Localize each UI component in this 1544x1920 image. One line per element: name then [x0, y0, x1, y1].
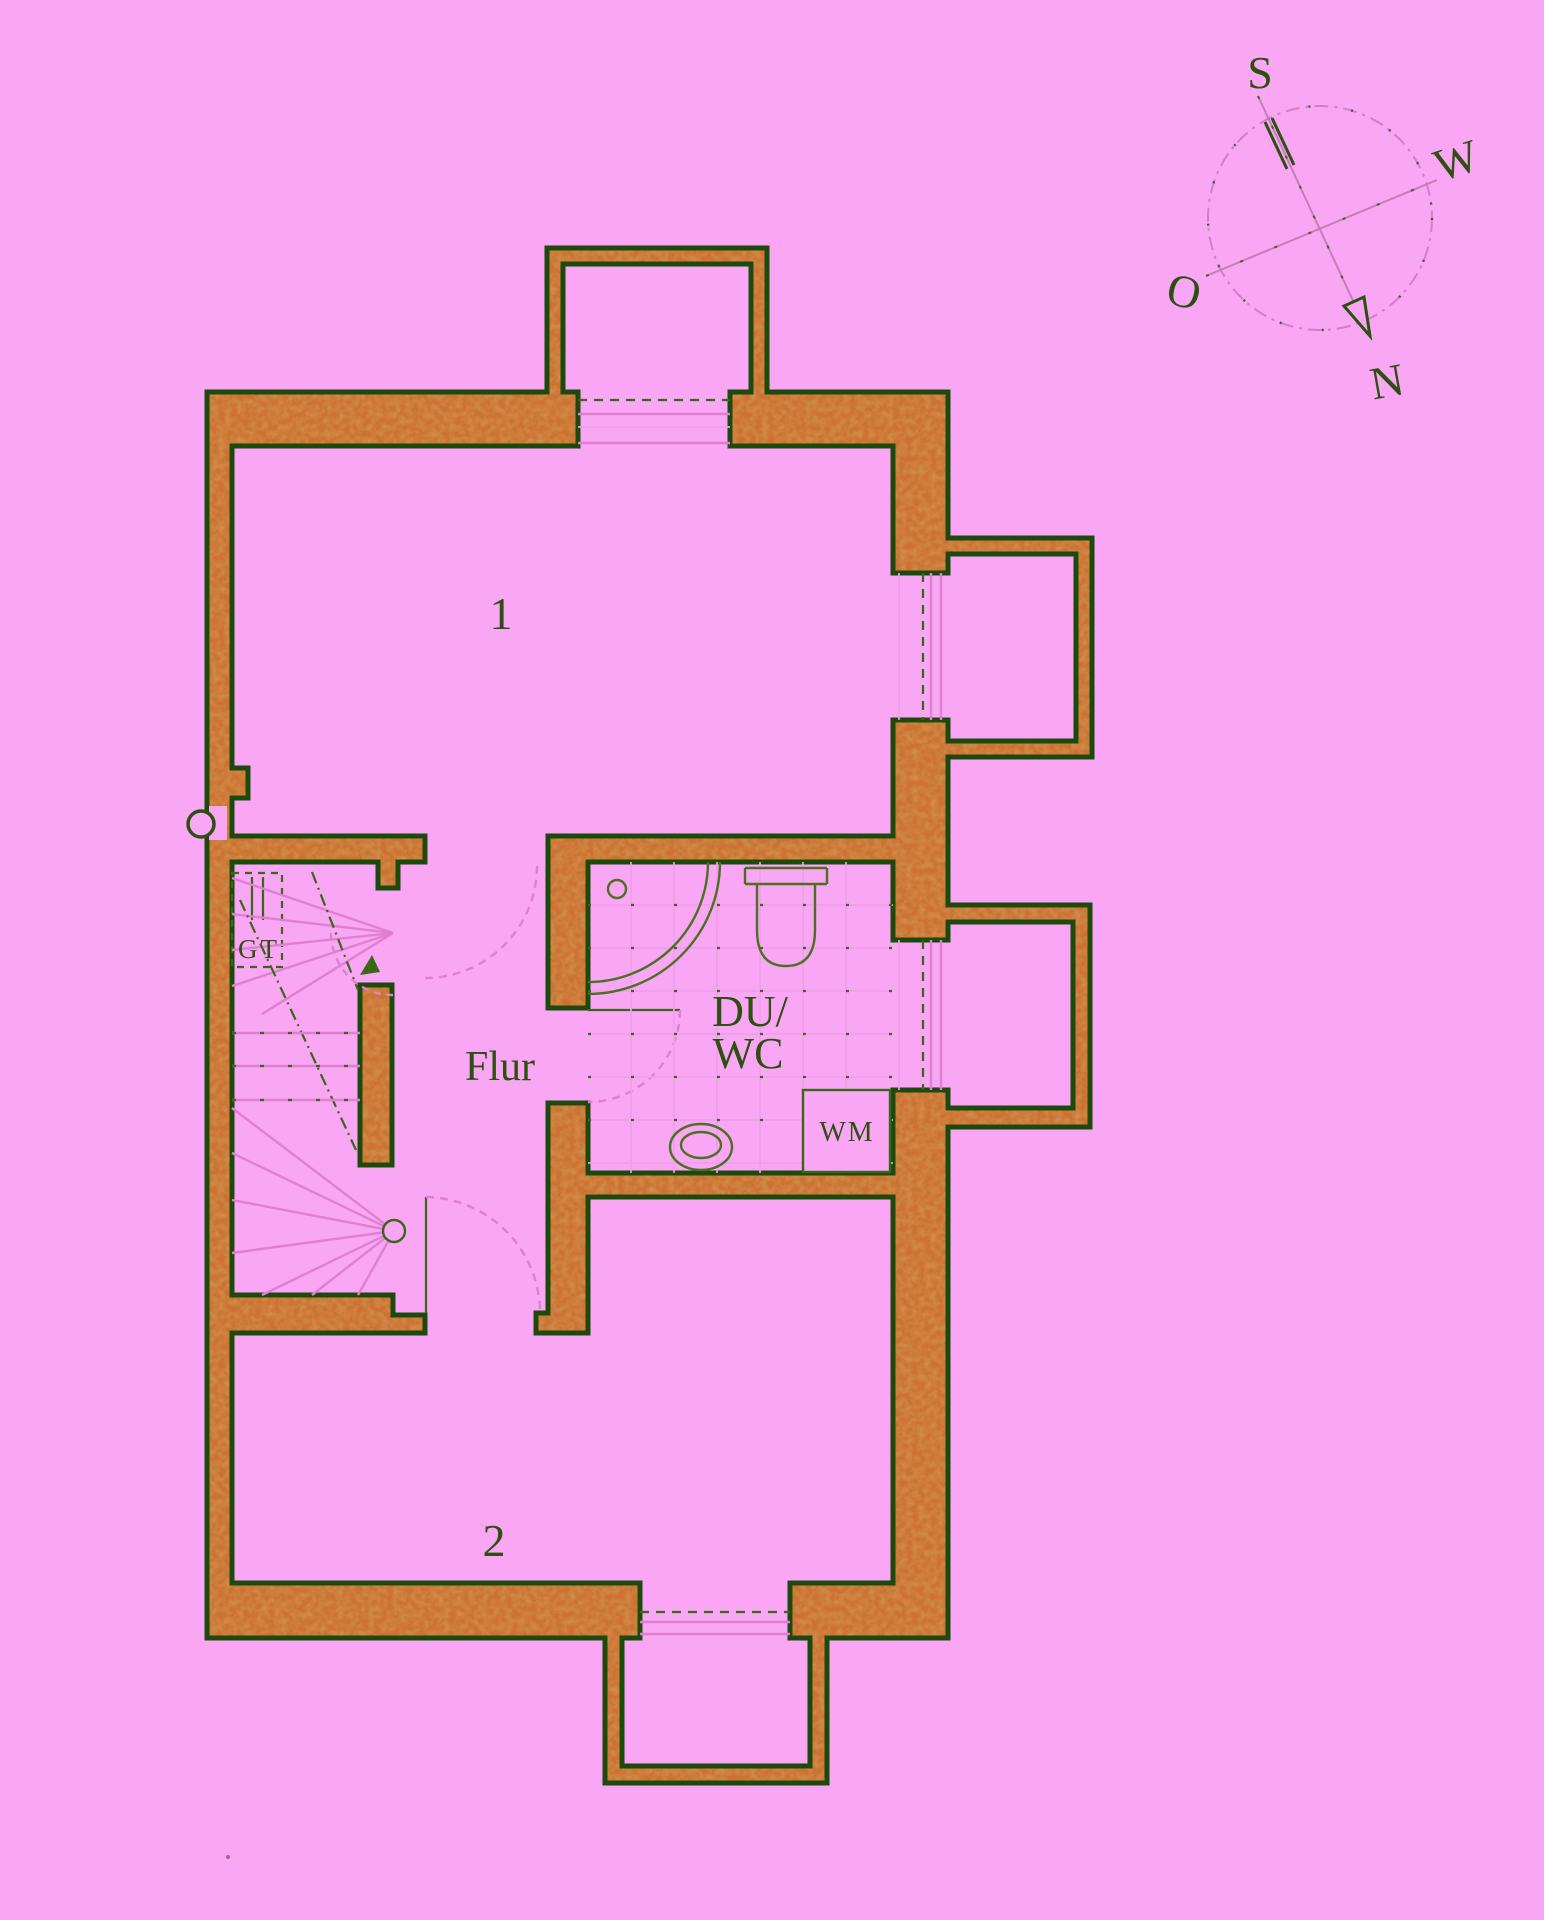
scan-speck — [226, 1855, 230, 1859]
washing-machine-label: WM — [819, 1117, 874, 1148]
wall-segment — [393, 1315, 425, 1333]
stair-newel-circle — [383, 1220, 405, 1242]
wall-segment — [548, 836, 893, 862]
hall-label: Flur — [465, 1044, 535, 1090]
wall-segment — [207, 1583, 640, 1638]
wall-segment — [548, 1173, 893, 1197]
wall-segment — [790, 1583, 948, 1638]
wall-segment — [232, 1295, 393, 1333]
wall-segment — [207, 392, 578, 446]
wall-segment — [893, 392, 948, 573]
compass-south-label: S — [1247, 47, 1273, 98]
floor-plan-page: 1 2 Flur DU/ WC WM GT S W O N — [0, 0, 1544, 1920]
wall-segment — [207, 392, 232, 1638]
wall-segment — [378, 862, 398, 888]
wall-segment — [536, 1313, 588, 1333]
downpipe-circle — [188, 811, 214, 837]
wall-segment — [605, 1638, 622, 1783]
boiler-label: GT — [238, 934, 280, 964]
room2-label: 2 — [483, 1515, 506, 1566]
wall-segment — [893, 720, 948, 940]
bath-label-line2: WC — [713, 1029, 784, 1078]
wall-segment — [893, 1090, 948, 1638]
wall-segment — [948, 905, 1090, 922]
room1-label: 1 — [490, 588, 513, 639]
wall-segment — [1073, 905, 1090, 1127]
wall-segment — [810, 1638, 827, 1783]
wall-segment — [548, 862, 588, 1008]
wall-segment — [548, 1103, 588, 1333]
stair-spine-wall — [360, 985, 392, 1165]
wall-segment — [232, 836, 425, 862]
wall-segment — [948, 1108, 1090, 1127]
wall-segment — [605, 1766, 827, 1783]
floor-plan-canvas: 1 2 Flur DU/ WC WM GT S W O N — [0, 0, 1544, 1920]
